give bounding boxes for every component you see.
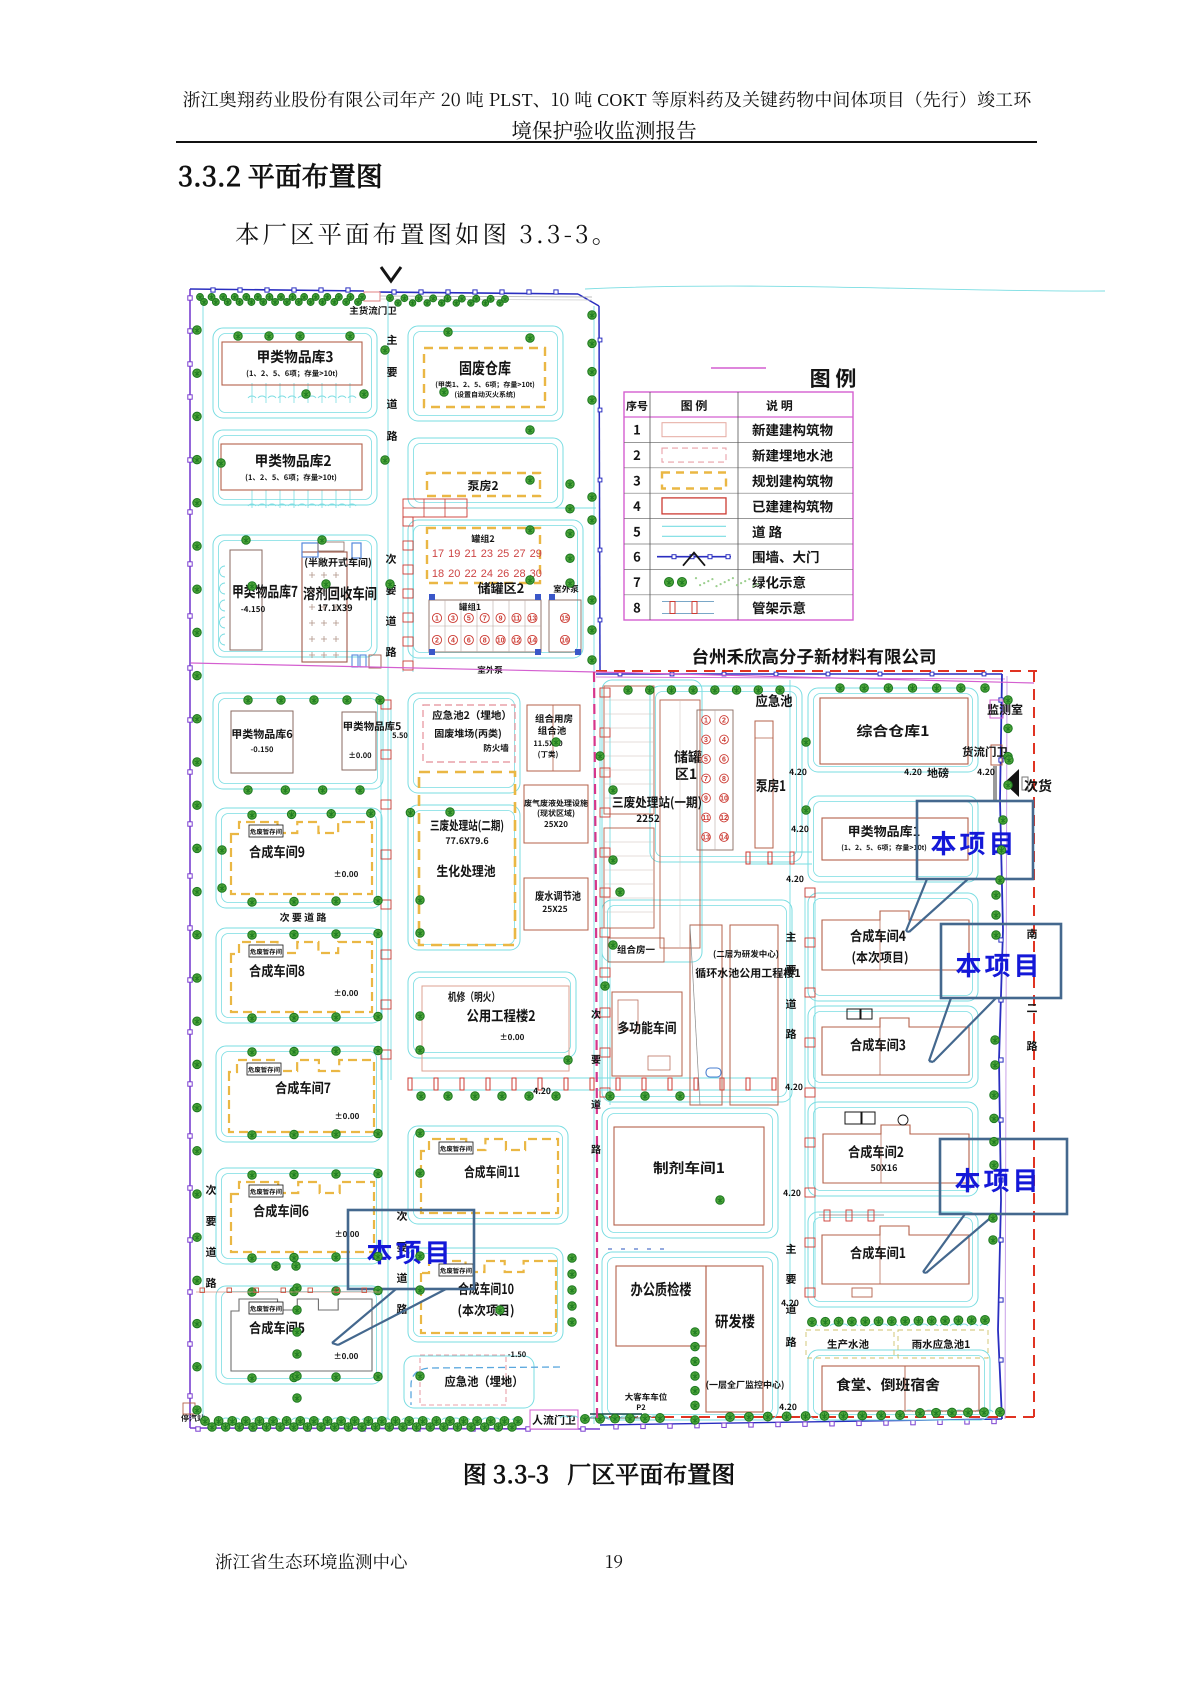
svg-text:3: 3 bbox=[451, 616, 455, 623]
svg-text:4.20: 4.20 bbox=[977, 766, 995, 778]
svg-text:次 要 道 路: 次 要 道 路 bbox=[280, 909, 327, 924]
svg-text:甲类物品库6: 甲类物品库6 bbox=[231, 726, 293, 742]
svg-text:4.20: 4.20 bbox=[789, 766, 807, 778]
svg-text:5: 5 bbox=[704, 757, 708, 764]
svg-text:机修（明火）: 机修（明火） bbox=[448, 989, 500, 1005]
svg-text:(本次项目): (本次项目) bbox=[852, 947, 909, 966]
svg-text:应急池: 应急池 bbox=[756, 691, 793, 711]
svg-text:综合仓库1: 综合仓库1 bbox=[857, 721, 930, 741]
svg-text:77.6X79.6: 77.6X79.6 bbox=[445, 834, 488, 847]
svg-text:要: 要 bbox=[591, 1051, 601, 1066]
svg-text:已建建构筑物: 已建建构筑物 bbox=[752, 495, 833, 515]
svg-text:路: 路 bbox=[786, 1026, 797, 1042]
svg-text:25X20: 25X20 bbox=[544, 819, 568, 830]
svg-text:防火墙: 防火墙 bbox=[483, 742, 509, 754]
svg-text:合成车间4: 合成车间4 bbox=[850, 926, 906, 946]
svg-text:4: 4 bbox=[722, 737, 726, 744]
svg-text:4: 4 bbox=[451, 638, 455, 645]
svg-text:储罐区2: 储罐区2 bbox=[478, 578, 525, 597]
svg-text:14: 14 bbox=[720, 835, 728, 842]
svg-text:4.20: 4.20 bbox=[781, 1297, 799, 1309]
svg-text:泵房2: 泵房2 bbox=[467, 477, 498, 494]
svg-text:21: 21 bbox=[464, 548, 476, 560]
svg-text:图 例: 图 例 bbox=[810, 363, 857, 393]
svg-text:甲类物品库7: 甲类物品库7 bbox=[232, 581, 298, 602]
svg-text:9: 9 bbox=[704, 796, 708, 803]
svg-text:本项目: 本项目 bbox=[955, 946, 1042, 983]
svg-text:±0.00: ±0.00 bbox=[334, 988, 359, 999]
svg-text:29: 29 bbox=[530, 548, 542, 560]
svg-text:19: 19 bbox=[448, 548, 460, 560]
svg-text:食堂、倒班宿舍: 食堂、倒班宿舍 bbox=[836, 1374, 941, 1395]
svg-text:-0.150: -0.150 bbox=[251, 744, 274, 755]
svg-text:绿化示意: 绿化示意 bbox=[752, 572, 806, 592]
svg-text:危废暂存间: 危废暂存间 bbox=[250, 1304, 282, 1313]
svg-text:12: 12 bbox=[720, 815, 728, 822]
svg-text:雨水应急池1: 雨水应急池1 bbox=[912, 1337, 971, 1352]
svg-text:组合房一: 组合房一 bbox=[617, 942, 656, 956]
svg-text:要: 要 bbox=[786, 962, 797, 978]
svg-text:-1.50: -1.50 bbox=[508, 1349, 527, 1360]
svg-text:(1、2、5、6项；存量>10t): (1、2、5、6项；存量>10t) bbox=[246, 368, 338, 379]
svg-text:合成车间6: 合成车间6 bbox=[253, 1201, 309, 1221]
svg-text:(甲类1、2、5、6项；存量>10t): (甲类1、2、5、6项；存量>10t) bbox=[435, 380, 535, 390]
svg-text:本项目: 本项目 bbox=[930, 824, 1017, 861]
svg-text:固废仓库: 固废仓库 bbox=[459, 355, 511, 379]
svg-text:±0.00: ±0.00 bbox=[334, 869, 359, 880]
svg-text:序号: 序号 bbox=[626, 398, 648, 414]
svg-text:危废暂存间: 危废暂存间 bbox=[250, 947, 282, 956]
svg-text:4.20: 4.20 bbox=[785, 1081, 803, 1093]
svg-text:人流门卫: 人流门卫 bbox=[532, 1412, 576, 1428]
svg-text:18: 18 bbox=[432, 568, 444, 580]
svg-text:4.20: 4.20 bbox=[779, 1401, 797, 1413]
svg-text:P2: P2 bbox=[636, 1402, 646, 1413]
svg-text:次货: 次货 bbox=[1024, 776, 1052, 796]
svg-text:4.20: 4.20 bbox=[791, 823, 809, 835]
svg-text:6: 6 bbox=[722, 757, 726, 764]
svg-text:11: 11 bbox=[702, 815, 710, 822]
svg-text:16: 16 bbox=[561, 638, 569, 645]
svg-text:甲类物品库1: 甲类物品库1 bbox=[848, 821, 921, 840]
svg-text:三废处理站(二期): 三废处理站(二期) bbox=[430, 815, 504, 834]
svg-text:应急池（埋地）: 应急池（埋地） bbox=[445, 1371, 524, 1390]
svg-text:合成车间11: 合成车间11 bbox=[464, 1162, 520, 1182]
svg-text:次: 次 bbox=[206, 1182, 217, 1198]
svg-text:路: 路 bbox=[386, 644, 397, 660]
svg-text:道: 道 bbox=[387, 396, 398, 412]
svg-text:3: 3 bbox=[704, 737, 708, 744]
svg-text:4.20: 4.20 bbox=[533, 1085, 551, 1097]
svg-text:合成车间2: 合成车间2 bbox=[848, 1142, 904, 1162]
svg-text:5: 5 bbox=[633, 521, 641, 540]
svg-text:管架示意: 管架示意 bbox=[752, 597, 806, 617]
svg-text:说 明: 说 明 bbox=[766, 397, 793, 414]
svg-text:路: 路 bbox=[786, 1334, 797, 1350]
svg-text:路: 路 bbox=[387, 428, 398, 444]
svg-text:要: 要 bbox=[387, 364, 398, 380]
svg-text:本项目: 本项目 bbox=[366, 1233, 453, 1270]
svg-text:13: 13 bbox=[702, 835, 710, 842]
svg-text:±0.00: ±0.00 bbox=[335, 1111, 360, 1122]
svg-text:17.1X39: 17.1X39 bbox=[317, 601, 352, 614]
svg-text:地磅: 地磅 bbox=[927, 765, 949, 781]
svg-text:次: 次 bbox=[591, 1006, 601, 1021]
svg-text:±0.00: ±0.00 bbox=[500, 1032, 525, 1043]
svg-text:7: 7 bbox=[483, 616, 487, 623]
svg-text:多功能车间: 多功能车间 bbox=[618, 1018, 677, 1038]
svg-text:道: 道 bbox=[386, 613, 397, 629]
svg-text:11: 11 bbox=[513, 616, 521, 623]
svg-text:20: 20 bbox=[448, 568, 460, 580]
svg-text:合成车间7: 合成车间7 bbox=[275, 1078, 331, 1098]
svg-text:(设置自动灭火系统): (设置自动灭火系统) bbox=[454, 390, 516, 400]
svg-text:9: 9 bbox=[499, 616, 503, 623]
svg-text:合成车间8: 合成车间8 bbox=[249, 961, 305, 981]
svg-text:道: 道 bbox=[397, 1270, 408, 1286]
svg-text:13: 13 bbox=[529, 616, 537, 623]
svg-text:(丁类): (丁类) bbox=[538, 749, 559, 760]
svg-text:甲类物品库3: 甲类物品库3 bbox=[257, 346, 334, 367]
svg-text:主: 主 bbox=[387, 332, 398, 348]
svg-text:(半敞开式车间): (半敞开式车间) bbox=[304, 554, 372, 569]
svg-text:合成车间9: 合成车间9 bbox=[249, 842, 305, 862]
svg-text:危废暂存间: 危废暂存间 bbox=[250, 827, 282, 836]
svg-text:区1: 区1 bbox=[675, 764, 697, 784]
svg-text:办公质检楼: 办公质检楼 bbox=[631, 1278, 692, 1300]
svg-text:罐组2: 罐组2 bbox=[471, 532, 494, 545]
svg-text:合成车间1: 合成车间1 bbox=[850, 1243, 906, 1263]
svg-text:27: 27 bbox=[513, 548, 525, 560]
svg-text:25: 25 bbox=[497, 548, 509, 560]
svg-text:固废堆场(丙类): 固废堆场(丙类) bbox=[434, 725, 502, 740]
svg-text:主: 主 bbox=[786, 1241, 797, 1257]
svg-text:(1、2、5、6项；存量>10t): (1、2、5、6项；存量>10t) bbox=[245, 472, 337, 483]
svg-text:1: 1 bbox=[435, 616, 439, 623]
svg-text:22: 22 bbox=[464, 568, 476, 580]
svg-text:(二层为研发中心): (二层为研发中心) bbox=[713, 948, 779, 960]
svg-text:6: 6 bbox=[467, 638, 471, 645]
svg-text:12: 12 bbox=[513, 638, 521, 645]
svg-text:图 例: 图 例 bbox=[681, 397, 708, 414]
svg-text:4.20: 4.20 bbox=[786, 873, 804, 885]
svg-text:23: 23 bbox=[481, 548, 493, 560]
svg-text:50X16: 50X16 bbox=[871, 1161, 898, 1174]
svg-text:15: 15 bbox=[561, 616, 569, 623]
svg-text:4.20: 4.20 bbox=[783, 1187, 801, 1199]
svg-text:1: 1 bbox=[633, 420, 641, 439]
svg-text:6: 6 bbox=[633, 547, 641, 566]
svg-text:3: 3 bbox=[633, 471, 641, 490]
svg-text:4.20: 4.20 bbox=[904, 766, 922, 778]
svg-text:-4.150: -4.150 bbox=[241, 604, 266, 615]
svg-text:合成车间3: 合成车间3 bbox=[850, 1035, 906, 1055]
svg-text:5: 5 bbox=[467, 616, 471, 623]
svg-text:危废暂存间: 危废暂存间 bbox=[250, 1187, 282, 1196]
svg-text:南: 南 bbox=[1027, 926, 1038, 942]
svg-text:(1、2、5、6项；存量>10t): (1、2、5、6项；存量>10t) bbox=[841, 843, 927, 853]
svg-text:甲类物品库2: 甲类物品库2 bbox=[255, 450, 332, 471]
svg-text:25X25: 25X25 bbox=[542, 903, 567, 915]
svg-text:新建埋地水池: 新建埋地水池 bbox=[752, 445, 833, 465]
svg-text:8: 8 bbox=[633, 598, 641, 617]
svg-text:4: 4 bbox=[633, 496, 641, 515]
svg-text:8: 8 bbox=[483, 638, 487, 645]
svg-text:二: 二 bbox=[1027, 1000, 1038, 1016]
svg-text:10: 10 bbox=[720, 796, 728, 803]
svg-text:1: 1 bbox=[704, 718, 708, 725]
svg-text:道: 道 bbox=[786, 996, 797, 1012]
svg-text:2: 2 bbox=[633, 445, 641, 464]
svg-text:10: 10 bbox=[497, 638, 505, 645]
svg-text:2: 2 bbox=[722, 718, 726, 725]
svg-text:大客车车位: 大客车车位 bbox=[625, 1391, 668, 1403]
svg-text:生化处理池: 生化处理池 bbox=[437, 860, 496, 880]
svg-text:组合池: 组合池 bbox=[538, 723, 567, 737]
svg-text:路: 路 bbox=[206, 1275, 217, 1291]
svg-text:围墙、大门: 围墙、大门 bbox=[752, 546, 820, 566]
svg-text:路: 路 bbox=[1027, 1038, 1038, 1054]
svg-text:14: 14 bbox=[529, 638, 537, 645]
svg-text:要: 要 bbox=[786, 1271, 797, 1287]
svg-text:(现状区域): (现状区域) bbox=[537, 808, 575, 819]
svg-text:±0.00: ±0.00 bbox=[334, 1351, 359, 1362]
svg-text:要: 要 bbox=[206, 1213, 217, 1229]
svg-text:(本次项目): (本次项目) bbox=[458, 1300, 515, 1319]
svg-text:危废暂存间: 危废暂存间 bbox=[248, 1065, 280, 1074]
svg-text:危废暂存间: 危废暂存间 bbox=[440, 1144, 472, 1153]
svg-text:主: 主 bbox=[786, 929, 797, 945]
svg-text:7: 7 bbox=[633, 572, 641, 591]
svg-text:道 路: 道 路 bbox=[752, 521, 783, 541]
svg-text:罐组1: 罐组1 bbox=[459, 601, 481, 613]
svg-text:生产水池: 生产水池 bbox=[827, 1337, 869, 1352]
svg-text:2252: 2252 bbox=[636, 810, 660, 825]
svg-text:废水调节池: 废水调节池 bbox=[535, 888, 581, 904]
svg-text:17: 17 bbox=[432, 548, 444, 560]
svg-text:道: 道 bbox=[206, 1244, 217, 1260]
svg-text:路: 路 bbox=[591, 1141, 601, 1156]
svg-text:台州禾欣高分子新材料有限公司: 台州禾欣高分子新材料有限公司 bbox=[692, 644, 937, 669]
svg-text:±0.00: ±0.00 bbox=[348, 750, 372, 761]
svg-text:8: 8 bbox=[722, 776, 726, 783]
svg-text:新建建构筑物: 新建建构筑物 bbox=[752, 419, 833, 439]
svg-text:(一层全厂监控中心): (一层全厂监控中心) bbox=[706, 1378, 785, 1391]
svg-text:次: 次 bbox=[386, 551, 397, 567]
svg-text:5.50: 5.50 bbox=[392, 730, 408, 741]
svg-text:研发楼: 研发楼 bbox=[715, 1310, 755, 1332]
svg-text:道: 道 bbox=[591, 1096, 601, 1111]
svg-text:公用工程楼2: 公用工程楼2 bbox=[467, 1005, 536, 1026]
svg-text:规划建构筑物: 规划建构筑物 bbox=[752, 470, 833, 490]
svg-text:货流门卫: 货流门卫 bbox=[962, 744, 1008, 760]
svg-text:2: 2 bbox=[435, 638, 439, 645]
svg-text:应急池2（埋地）: 应急池2（埋地） bbox=[432, 708, 512, 723]
svg-text:三废处理站(一期): 三废处理站(一期) bbox=[612, 792, 702, 811]
svg-text:7: 7 bbox=[704, 776, 708, 783]
svg-text:制剂车间1: 制剂车间1 bbox=[653, 1158, 725, 1178]
svg-text:泵房1: 泵房1 bbox=[756, 775, 786, 796]
